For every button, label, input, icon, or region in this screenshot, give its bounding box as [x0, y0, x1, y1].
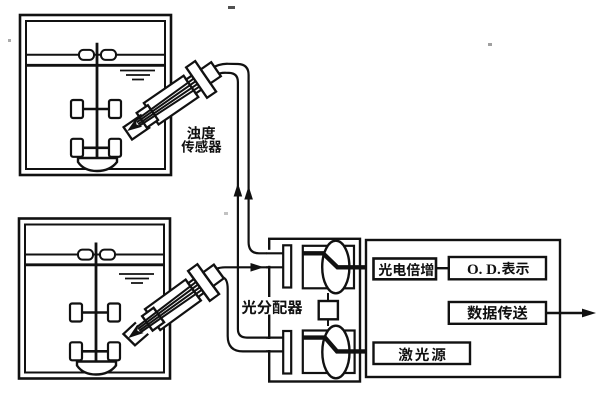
svg-text:O. D.: O. D.	[467, 262, 501, 278]
